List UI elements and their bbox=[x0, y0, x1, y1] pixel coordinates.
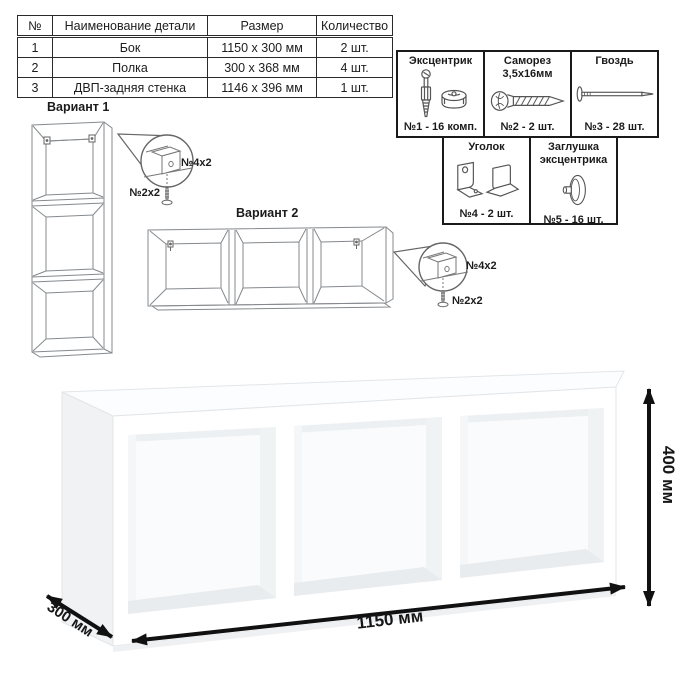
hardware-title-line1: Саморез bbox=[503, 55, 553, 68]
hardware-item-title: Саморез 3,5x16мм bbox=[503, 55, 553, 80]
hardware-item-count: №3 - 28 шт. bbox=[584, 121, 644, 133]
corner-bracket-icon bbox=[450, 154, 524, 208]
variant2-title: Вариант 2 bbox=[236, 206, 298, 220]
cam-bolt-icon bbox=[409, 68, 473, 121]
height-dimension-label: 400 мм bbox=[658, 430, 678, 520]
hardware-title-line1: Уголок bbox=[468, 141, 504, 154]
hardware-title-line1: Гвоздь bbox=[595, 55, 633, 68]
hardware-item-title: Уголок bbox=[468, 141, 504, 154]
variant2-bracket-qty-label: №4x2 bbox=[466, 260, 497, 272]
hardware-item-count: №5 - 16 шт. bbox=[543, 214, 603, 226]
hardware-item-screw: Саморез 3,5x16мм №2 - 2 шт. bbox=[483, 50, 572, 138]
hardware-item-eccentric: Эксцентрик №1 bbox=[396, 50, 485, 138]
hardware-item-title: Гвоздь bbox=[595, 55, 633, 68]
hardware-item-count: №4 - 2 шт. bbox=[460, 208, 514, 220]
hardware-box-row2: Уголок №4 - 2 шт. Заглушка эксцентрика bbox=[442, 136, 618, 225]
hardware-title-line1: Заглушка bbox=[540, 141, 608, 154]
hardware-item-title: Эксцентрик bbox=[409, 55, 472, 68]
hardware-item-count: №1 - 16 комп. bbox=[404, 121, 477, 133]
hardware-title-line2: 3,5x16мм bbox=[503, 68, 553, 81]
hardware-title-line1: Эксцентрик bbox=[409, 55, 472, 68]
hardware-item-cam-cover: Заглушка эксцентрика №5 - 16 шт. bbox=[529, 136, 618, 225]
hardware-item-count: №2 - 2 шт. bbox=[501, 121, 555, 133]
variant1-screw-qty-label: №2x2 bbox=[126, 187, 160, 199]
variant1-bracket-qty-label: №4x2 bbox=[181, 157, 212, 169]
variant2-screw-qty-label: №2x2 bbox=[452, 295, 483, 307]
hardware-item-title: Заглушка эксцентрика bbox=[540, 141, 608, 166]
assembly-instruction-page: № Наименование детали Размер Количество … bbox=[0, 0, 700, 700]
cam-cover-icon bbox=[554, 166, 594, 214]
hardware-item-nail: Гвоздь №3 - 28 шт. bbox=[570, 50, 659, 138]
screw-icon bbox=[489, 80, 567, 121]
hardware-title-line2: эксцентрика bbox=[540, 154, 608, 167]
variant1-drawing bbox=[32, 122, 112, 357]
nail-icon bbox=[573, 68, 657, 121]
hardware-box-row1: Эксцентрик №1 bbox=[396, 50, 659, 138]
shelf-3d-render bbox=[62, 371, 624, 652]
hardware-item-corner-bracket: Уголок №4 - 2 шт. bbox=[442, 136, 531, 225]
variant2-drawing bbox=[148, 227, 393, 310]
variant1-title: Вариант 1 bbox=[47, 100, 109, 114]
